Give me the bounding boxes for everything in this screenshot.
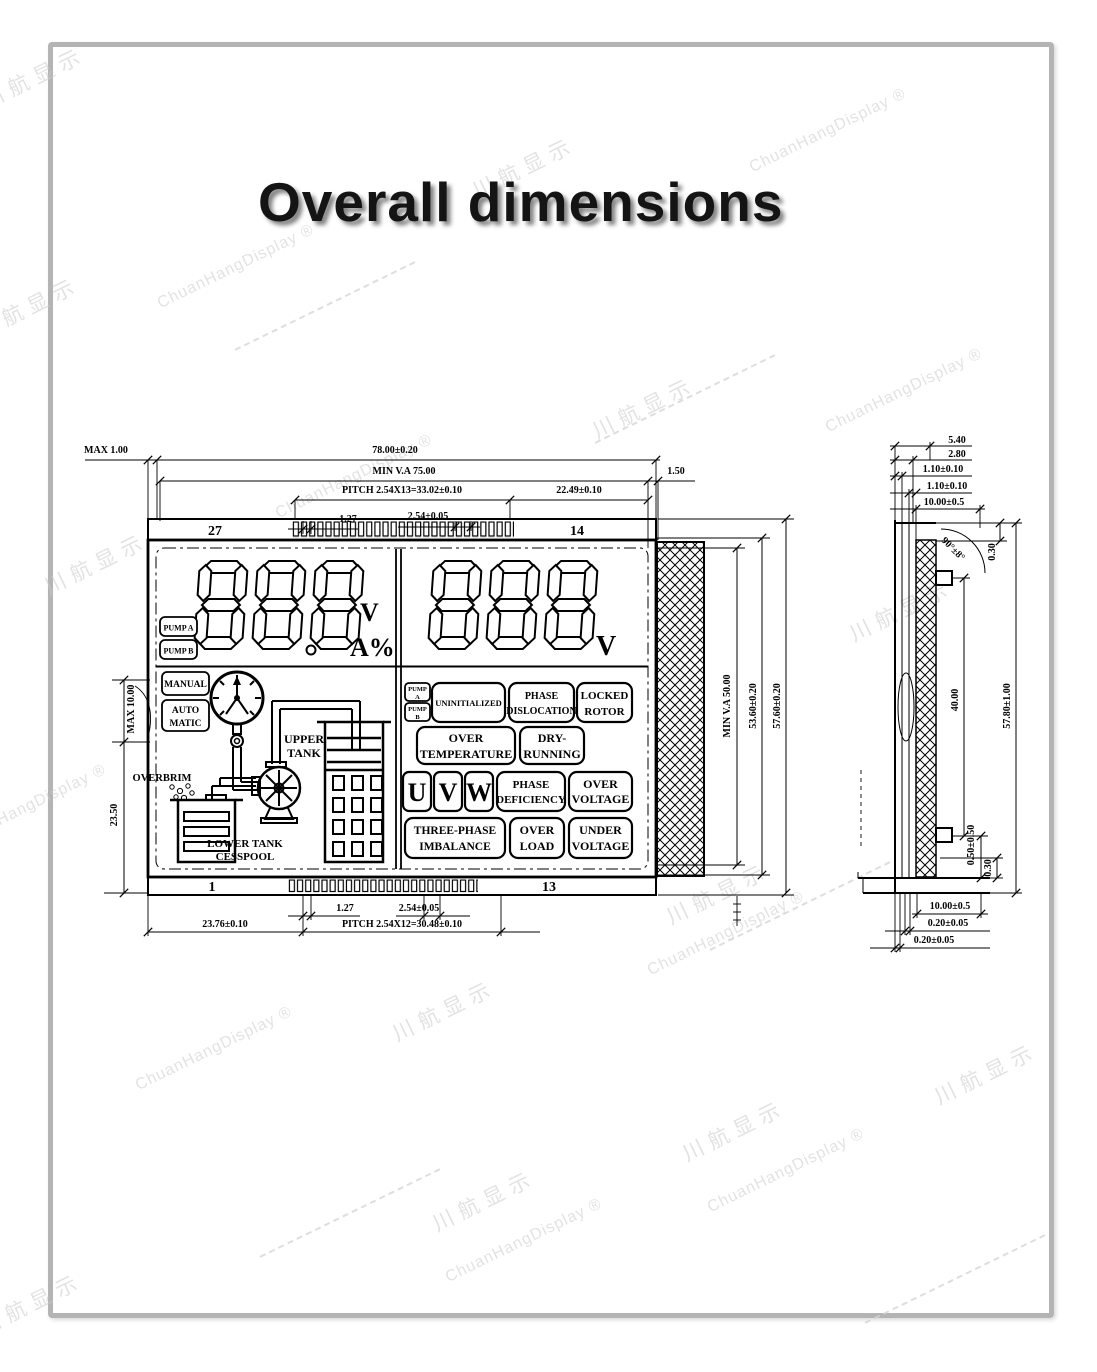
manual-label: MANUAL [164, 680, 207, 690]
decimal-point [307, 646, 316, 655]
dim-glass-thickness: 2.80 [948, 449, 966, 460]
dim-pin-length-top: 10.00±0.5 [924, 497, 965, 508]
unit-volt-right: V [596, 631, 616, 662]
dim-height-left: 23.50 [109, 804, 120, 827]
dislocation-label: DISLOCATION [506, 706, 577, 717]
small-pump-a-line2: A [415, 694, 420, 701]
phase-label: PHASE [525, 691, 559, 702]
pin-number-top-left: 27 [208, 524, 222, 539]
dim-min-va-width: MIN V.A 75.00 [373, 466, 436, 477]
voltage1-label: VOLTAGE [572, 792, 630, 806]
page: 川航显示 ChuanHangDisplay ® 川航显示 ChuanHangDi… [0, 0, 1097, 1372]
lower-tank-label-1: LOWER TANK [207, 838, 283, 850]
dim-pin-pitch-top: 2.54±0.05 [408, 511, 449, 522]
left-seven-segment-display: V A% [194, 561, 395, 662]
splash-icon [170, 784, 194, 801]
dim-width: 78.00±0.20 [372, 445, 418, 456]
upper-tank-icon [317, 722, 391, 862]
under-label: UNDER [579, 823, 622, 837]
dim-min-va-height: MIN V.A 50.00 [722, 675, 733, 738]
dim-max-edge: MAX 1.00 [84, 445, 128, 456]
side-lens-ellipse [898, 673, 914, 741]
dim-edge-right: 1.50 [667, 466, 685, 477]
zebra-strip [657, 542, 704, 876]
pump-a-label: PUMP A [164, 624, 194, 633]
dim-gap-top: 0.30 [987, 543, 998, 561]
matic-label: MATIC [169, 719, 201, 729]
side-pin-top [936, 571, 952, 585]
dim-span-left-bottom: 23.76±0.10 [202, 919, 248, 930]
side-view: 90°±8° [858, 435, 1022, 952]
gauge-icon [211, 672, 263, 747]
overbrim-label: OVERBRIM [133, 773, 192, 784]
voltage2-label: VOLTAGE [572, 839, 630, 853]
unit-amp-percent: A% [350, 633, 395, 662]
side-pin-bottom [936, 828, 952, 842]
lcd-panel: V A% PUMP A PUMP B V MANUAL [133, 549, 648, 869]
dim-pitch-bottom: PITCH 2.54X12=30.48±0.10 [342, 919, 462, 930]
dim-half-pitch-top: 1.27 [339, 514, 357, 525]
dim-side-height: 57.80±1.00 [1002, 683, 1013, 729]
upper-tank-label-1: UPPER [284, 732, 324, 746]
seven-segment-digit [428, 561, 482, 649]
small-pump-a-line1: PUMP [408, 686, 427, 693]
v-label: V [439, 778, 458, 807]
side-zebra-strip [916, 540, 936, 877]
pin-number-bottom-left: 1 [209, 880, 216, 895]
dim-va-height: 53.60±0.20 [748, 683, 759, 729]
dim-pitch-top: PITCH 2.54X13=33.02±0.10 [342, 485, 462, 496]
u-label: U [408, 778, 427, 807]
side-dimensions-vertical: 0.30 40.00 0.50±0.50 0.30 57.80±1.00 [936, 519, 1022, 897]
pin-number-bottom-right: 13 [542, 880, 556, 895]
seven-segment-digit [544, 561, 598, 649]
dim-pin-length-bottom: 10.00±0.5 [930, 901, 971, 912]
technical-drawing: 27 14 1 13 [0, 0, 1097, 1372]
dim-half-pitch-bottom: 1.27 [336, 903, 354, 914]
running-label: RUNNING [523, 747, 580, 761]
pump-b-label: PUMP B [164, 647, 195, 656]
over3-label: OVER [520, 823, 555, 837]
seven-segment-digit [252, 561, 306, 649]
temperature-label: TEMPERATURE [420, 747, 512, 761]
dim-gap-bottom: 0.30 [983, 859, 994, 877]
imbalance-label: IMBALANCE [419, 841, 491, 853]
dim-tab-left: MAX 10.00 [126, 685, 137, 734]
auto-label: AUTO [172, 706, 199, 716]
front-view: 27 14 1 13 [84, 445, 794, 936]
dim-span-right: 22.49±0.10 [556, 485, 602, 496]
seven-segment-digit [486, 561, 540, 649]
side-dimensions-bottom: 10.00±0.5 0.20±0.05 0.20±0.05 [870, 893, 990, 952]
dim-pin-pitch-bottom: 2.54±0.05 [399, 903, 440, 914]
load-label: LOAD [520, 839, 555, 853]
dim-total-thickness: 5.40 [948, 435, 966, 446]
rotor-label: ROTOR [584, 706, 625, 718]
dry-label: DRY- [538, 731, 566, 745]
side-dimensions-top: 5.40 2.80 1.10±0.10 1.10±0.10 10.00±0.5 [890, 435, 985, 540]
dim-pin-angle: 90°±8° [939, 535, 967, 563]
over2-label: OVER [583, 777, 618, 791]
pump-icon [258, 767, 300, 823]
small-pump-b-line1: PUMP [408, 706, 427, 713]
w-label: W [466, 778, 492, 807]
phase2-label: PHASE [513, 779, 550, 791]
dim-front-glass: 1.10±0.10 [923, 464, 964, 475]
over-label: OVER [449, 731, 484, 745]
dim-height: 57.60±0.20 [772, 683, 783, 729]
small-pump-b-line2: B [415, 714, 420, 721]
dim-flange-1: 0.20±0.05 [928, 918, 969, 929]
pin-number-top-right: 14 [570, 524, 584, 539]
unit-volt-left: V [360, 598, 379, 627]
lower-tank-label-2: CESSPOOL [216, 851, 275, 863]
bottom-pin-row [288, 880, 478, 893]
threephase-label: THREE-PHASE [414, 825, 497, 837]
locked-label: LOCKED [581, 690, 629, 702]
upper-tank-label-2: TANK [287, 746, 321, 760]
dim-rear-glass: 1.10±0.10 [927, 481, 968, 492]
deficiency-label: DEFICIENCY [496, 794, 566, 806]
dim-pin-row-span: 40.00 [950, 689, 961, 712]
dim-pin-bottom-offset: 0.50±0.50 [966, 825, 977, 866]
seven-segment-digit [194, 561, 248, 649]
uninitialized-label: UNINITIALIZED [435, 698, 502, 708]
dim-flange-2: 0.20±0.05 [914, 935, 955, 946]
right-seven-segment-display: V [428, 561, 616, 662]
